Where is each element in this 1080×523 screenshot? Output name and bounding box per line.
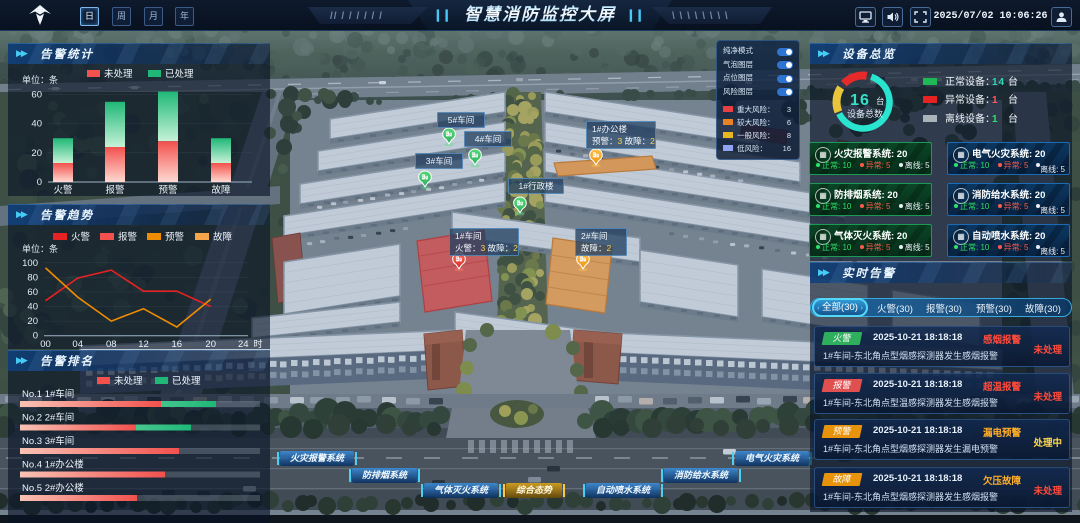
svg-text:正常设备：: 正常设备： — [945, 75, 995, 88]
svg-text:16: 16 — [850, 92, 870, 109]
svg-text:故障: 故障 — [213, 231, 233, 243]
svg-text:80: 80 — [27, 272, 38, 283]
svg-text:40: 40 — [31, 119, 42, 130]
svg-text:已处理: 已处理 — [165, 68, 194, 80]
svg-text:预警: 预警 — [165, 231, 185, 243]
svg-text:火警: 火警 — [71, 231, 91, 243]
svg-text:报警: 报警 — [118, 231, 138, 243]
svg-text:未处理: 未处理 — [114, 375, 143, 387]
svg-text:台: 台 — [876, 96, 885, 106]
svg-text:未处理: 未处理 — [104, 68, 133, 80]
svg-text:No.3 3#车间: No.3 3#车间 — [22, 435, 74, 447]
svg-text:0: 0 — [37, 177, 42, 188]
svg-text:00: 00 — [40, 339, 51, 349]
svg-text:100: 100 — [22, 258, 38, 269]
svg-text:1: 1 — [992, 95, 999, 106]
svg-text:20: 20 — [205, 339, 216, 349]
svg-text:设备总数: 设备总数 — [847, 108, 883, 119]
svg-text:故障: 故障 — [211, 184, 231, 196]
svg-text:16: 16 — [172, 339, 183, 349]
svg-text:No.1 1#车间: No.1 1#车间 — [22, 388, 74, 400]
svg-text:12: 12 — [138, 339, 149, 349]
svg-text:预警: 预警 — [158, 184, 178, 196]
svg-text:已处理: 已处理 — [172, 375, 201, 387]
svg-text:单位：条: 单位：条 — [22, 74, 58, 85]
svg-text:1: 1 — [992, 114, 999, 125]
svg-text:时: 时 — [253, 338, 262, 349]
svg-text:台: 台 — [1008, 112, 1018, 125]
svg-text:火警: 火警 — [53, 184, 73, 196]
svg-text:60: 60 — [27, 287, 38, 298]
svg-text:单位：条: 单位：条 — [22, 243, 58, 254]
svg-text:台: 台 — [1008, 93, 1018, 106]
svg-text:24: 24 — [238, 339, 249, 349]
svg-text:08: 08 — [106, 339, 117, 349]
svg-text:异常设备：: 异常设备： — [945, 93, 995, 106]
svg-text:20: 20 — [31, 148, 42, 159]
svg-text:离线设备：: 离线设备： — [945, 112, 995, 125]
svg-text:No.4 1#办公楼: No.4 1#办公楼 — [22, 459, 84, 471]
svg-text:14: 14 — [992, 77, 1005, 88]
svg-text:No.2 2#车间: No.2 2#车间 — [22, 412, 74, 424]
svg-text:报警: 报警 — [105, 184, 125, 196]
svg-text:No.5 2#办公楼: No.5 2#办公楼 — [22, 482, 84, 494]
svg-text:04: 04 — [72, 339, 83, 349]
svg-text:60: 60 — [31, 90, 42, 101]
svg-text:台: 台 — [1008, 75, 1018, 88]
svg-text:40: 40 — [27, 302, 38, 313]
svg-text:20: 20 — [27, 316, 38, 327]
svg-text:0: 0 — [33, 331, 38, 342]
